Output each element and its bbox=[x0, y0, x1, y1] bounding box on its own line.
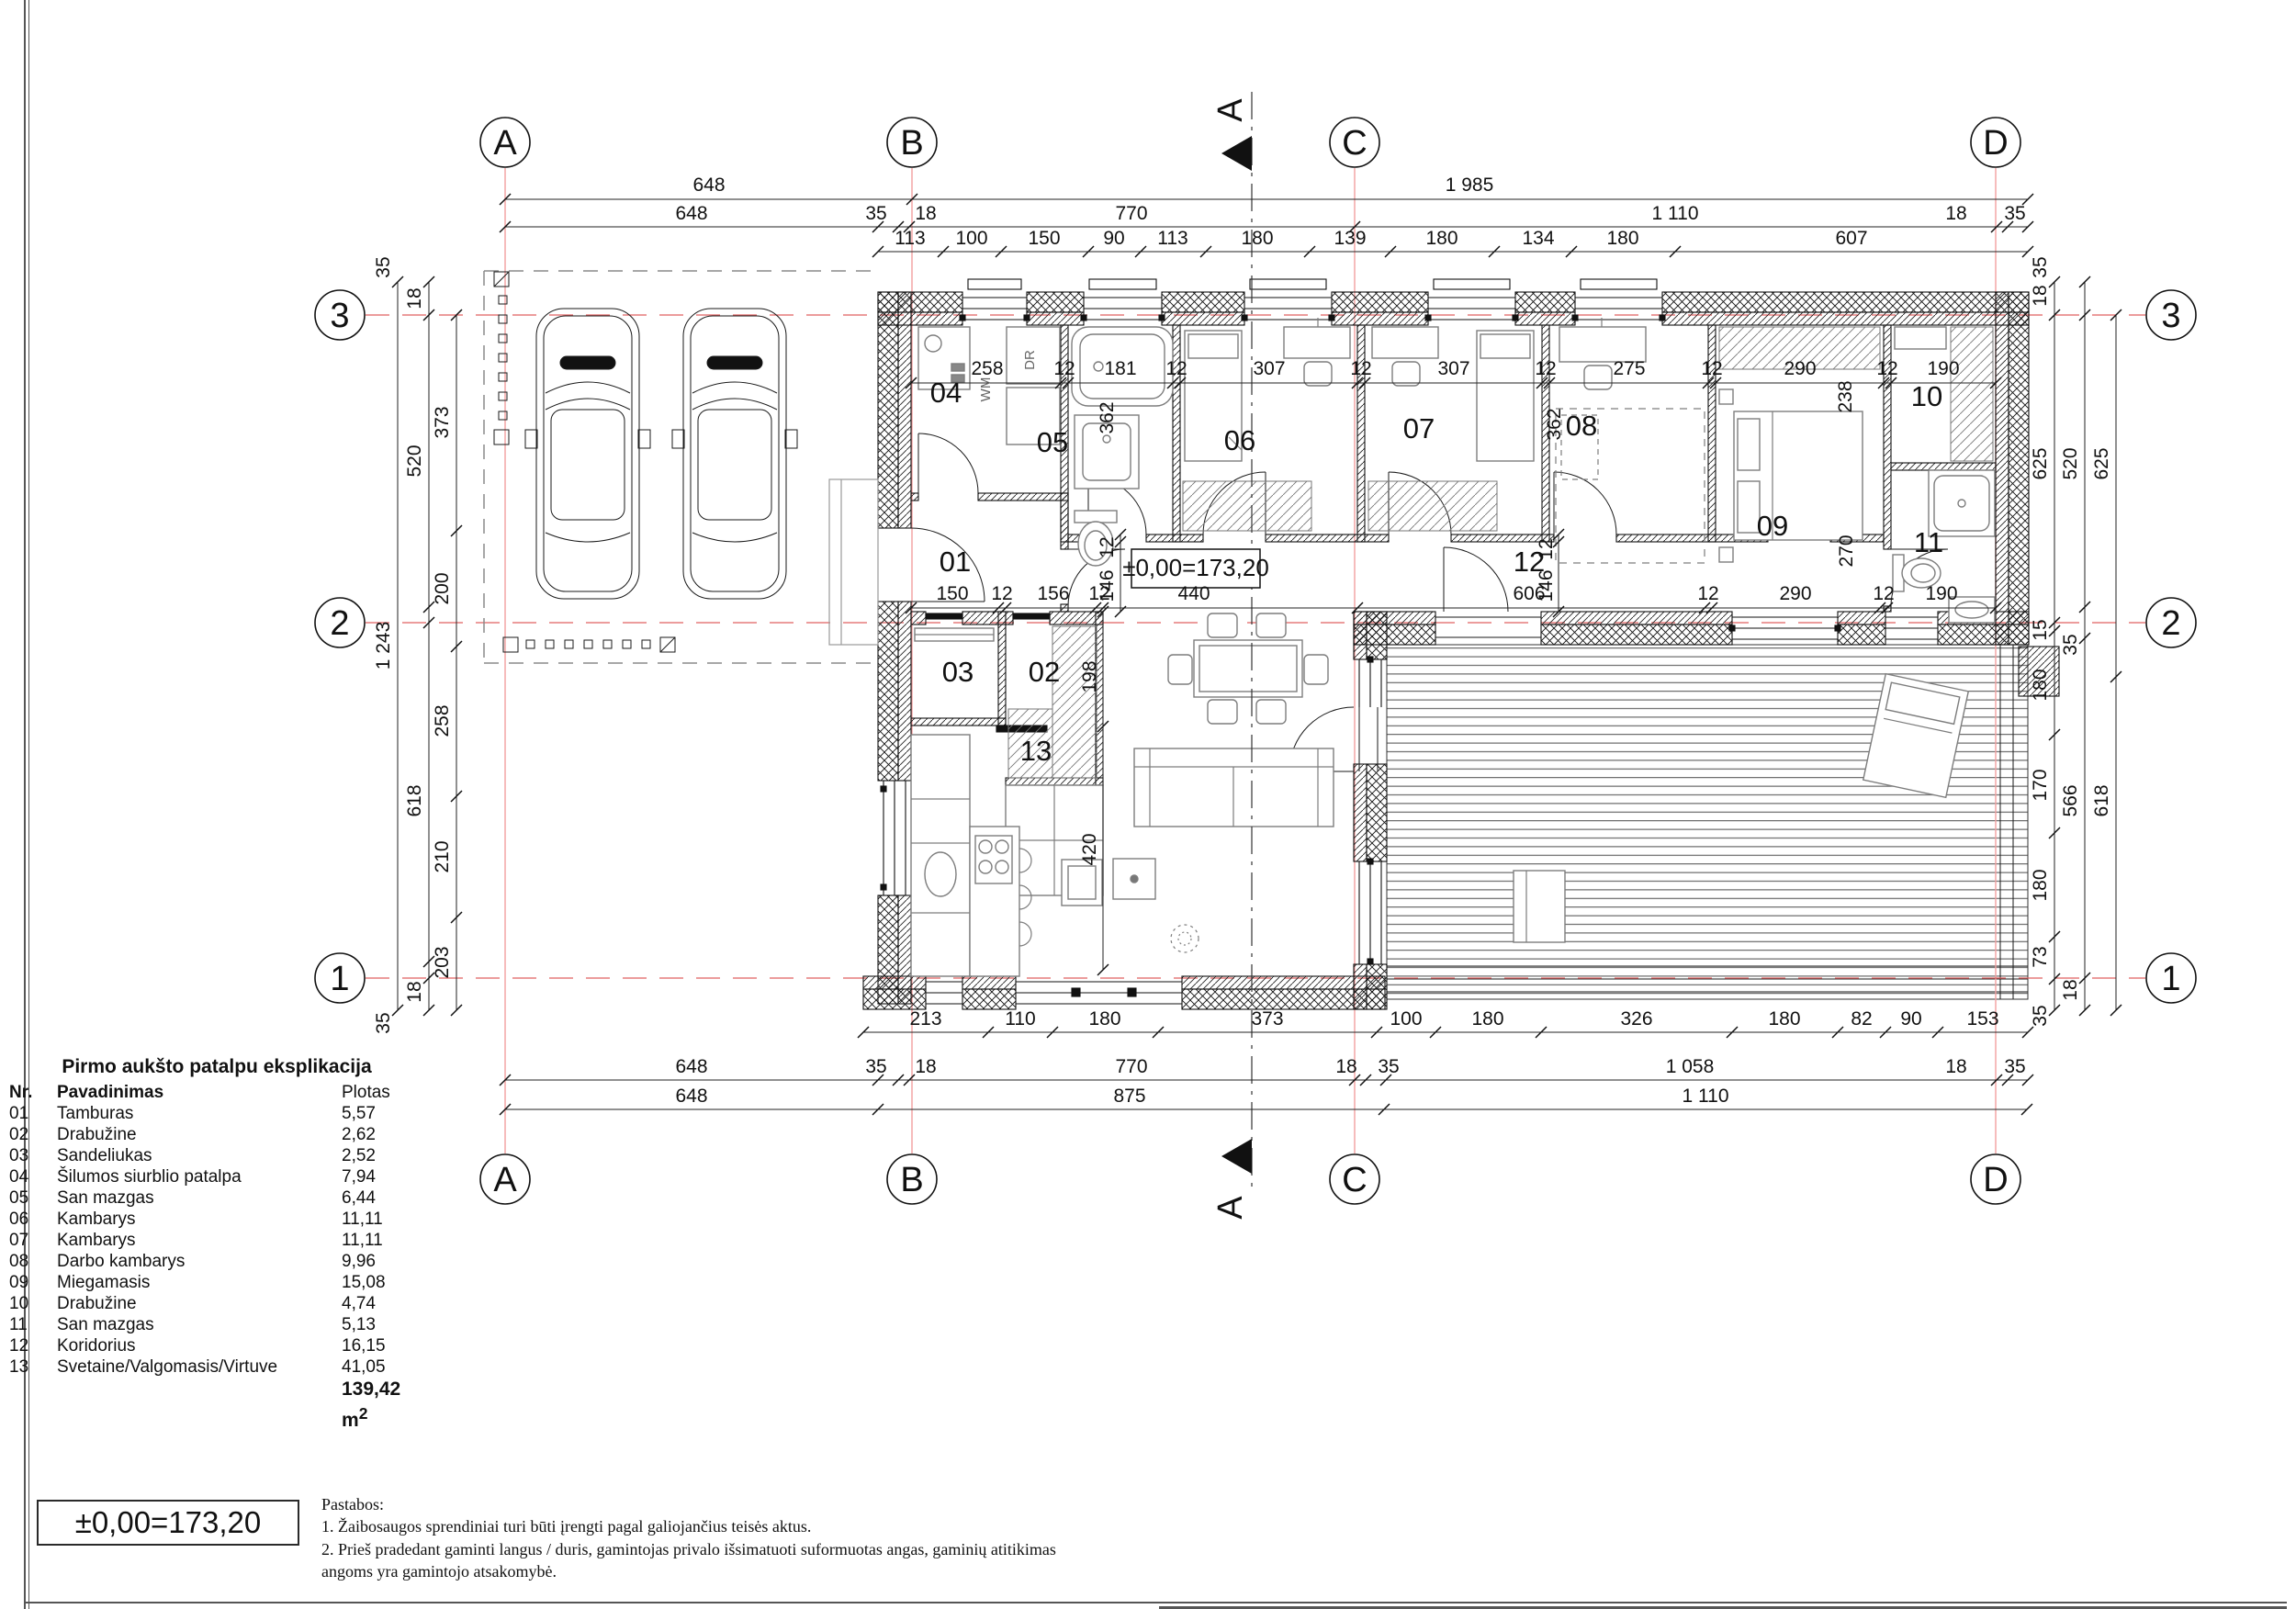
legend-row-nr: 02 bbox=[9, 1124, 57, 1145]
dim-label: 520 bbox=[2060, 447, 2081, 479]
notes-block: Pastabos: 1. Žaibosaugos sprendiniai tur… bbox=[321, 1493, 1221, 1582]
room-number: 11 bbox=[1914, 526, 1943, 558]
dim-label: 12 bbox=[991, 583, 1012, 604]
dim-label: 150 bbox=[1028, 228, 1060, 249]
legend-row-nr: 13 bbox=[9, 1356, 57, 1378]
legend-row: 01 Tamburas 5,57 bbox=[9, 1103, 424, 1124]
legend-row-area: 11,11 bbox=[342, 1230, 424, 1251]
car bbox=[525, 309, 650, 599]
dim-label: 180 bbox=[1241, 228, 1273, 249]
dim-label: 1 110 bbox=[1683, 1086, 1729, 1107]
dim-label: 770 bbox=[1115, 1056, 1147, 1077]
dim-label: 180 bbox=[1768, 1008, 1800, 1030]
dim-label: 1 110 bbox=[1652, 203, 1699, 224]
legend-row-area: 41,05 bbox=[342, 1356, 424, 1378]
axis-col-c-bottom: C bbox=[1342, 1161, 1367, 1199]
legend-row: 13 Svetaine/Valgomasis/Virtuve 41,05 bbox=[9, 1356, 424, 1378]
dim-label: 420 bbox=[1079, 833, 1100, 865]
dim-label: 18 bbox=[1945, 203, 1966, 224]
dim-label: 18 bbox=[404, 981, 425, 1002]
dim-label: 170 bbox=[2030, 769, 2051, 801]
dim-label: 198 bbox=[1079, 660, 1100, 692]
legend-row-area: 5,13 bbox=[342, 1314, 424, 1335]
floor-plan-sheet: A A A B C D A B C D 3 2 1 3 2 1 bbox=[0, 0, 2296, 1609]
dim-label: 15 bbox=[2030, 619, 2051, 640]
legend-row-area: 2,62 bbox=[342, 1124, 424, 1145]
dim-label: 875 bbox=[1113, 1086, 1145, 1107]
room-number: 13 bbox=[1020, 735, 1052, 767]
window-north-04 bbox=[960, 279, 1030, 321]
axis-row-1-right: 1 bbox=[2161, 960, 2180, 998]
dim-label: 326 bbox=[1620, 1008, 1652, 1030]
dim-label: 275 bbox=[1613, 358, 1645, 379]
dim-label: 146 bbox=[1097, 569, 1118, 602]
legend-row-nr: 06 bbox=[9, 1209, 57, 1230]
dim-label: 150 bbox=[936, 583, 968, 604]
dim-label: 373 bbox=[432, 406, 453, 438]
legend-row-area: 7,94 bbox=[342, 1166, 424, 1187]
dim-label: 1 243 bbox=[373, 622, 394, 670]
axis-col-a: A bbox=[493, 124, 517, 163]
dim-label: 18 bbox=[1335, 1056, 1356, 1077]
dim-label: 180 bbox=[1425, 228, 1458, 249]
axis-col-d: D bbox=[1983, 124, 2008, 163]
legend-row-area: 15,08 bbox=[342, 1272, 424, 1293]
dim-label: 213 bbox=[909, 1008, 941, 1030]
dim-label: 180 bbox=[1088, 1008, 1120, 1030]
legend-row-name: Drabužine bbox=[57, 1124, 342, 1145]
legend-row-area: 2,52 bbox=[342, 1145, 424, 1166]
dim-label: 90 bbox=[1900, 1008, 1921, 1030]
legend-row: 04 Šilumos siurblio patalpa 7,94 bbox=[9, 1166, 424, 1187]
room-schedule: Pirmo aukšto patalpu eksplikacija Nr. Pa… bbox=[9, 1056, 424, 1433]
dim-label: DR bbox=[1022, 350, 1038, 370]
wardrobe bbox=[1183, 481, 1311, 531]
section-arrow-bottom bbox=[1221, 1139, 1252, 1174]
dim-label: 100 bbox=[1390, 1008, 1422, 1030]
legend-row-name: Sandeliukas bbox=[57, 1145, 342, 1166]
desk bbox=[1284, 318, 1350, 386]
legend-row-name: Svetaine/Valgomasis/Virtuve bbox=[57, 1356, 342, 1378]
dim-label: 35 bbox=[373, 1012, 394, 1033]
legend-row-nr: 11 bbox=[9, 1314, 57, 1335]
legend-row-area: 11,11 bbox=[342, 1209, 424, 1230]
legend-title: Pirmo aukšto patalpu eksplikacija bbox=[9, 1056, 424, 1078]
legend-row-name: Darbo kambarys bbox=[57, 1251, 342, 1272]
window-south-2 bbox=[1016, 982, 1182, 1004]
room-number: 09 bbox=[1757, 510, 1788, 542]
dim-label: 35 bbox=[865, 1056, 886, 1077]
legend-row-name: Tamburas bbox=[57, 1103, 342, 1124]
axis-col-d-bottom: D bbox=[1983, 1161, 2008, 1199]
dim-label: 1 058 bbox=[1666, 1056, 1715, 1077]
legend-row: 08 Darbo kambarys 9,96 bbox=[9, 1251, 424, 1272]
plant bbox=[1171, 925, 1199, 952]
room-number: 01 bbox=[940, 546, 971, 578]
notes-heading: Pastabos: bbox=[321, 1493, 1221, 1515]
dim-label: 90 bbox=[1103, 228, 1124, 249]
dim-label: 18 bbox=[2060, 979, 2081, 1000]
dim-label: 307 bbox=[1437, 358, 1469, 379]
dim-label: 156 bbox=[1037, 583, 1069, 604]
legend-row-nr: 10 bbox=[9, 1293, 57, 1314]
legend-row: 07 Kambarys 11,11 bbox=[9, 1230, 424, 1251]
axis-row-1-left: 1 bbox=[330, 960, 349, 998]
elevation-datum: ±0,00=173,20 bbox=[75, 1505, 262, 1540]
room-number: 05 bbox=[1037, 426, 1068, 458]
dim-label: 770 bbox=[1115, 203, 1147, 224]
dim-label: 35 bbox=[1378, 1056, 1399, 1077]
car bbox=[672, 309, 797, 599]
legend-row-name: Šilumos siurblio patalpa bbox=[57, 1166, 342, 1187]
dim-label: 18 bbox=[915, 1056, 936, 1077]
legend-row-nr: 04 bbox=[9, 1166, 57, 1187]
dim-label: 35 bbox=[865, 203, 886, 224]
legend-row-nr: 12 bbox=[9, 1335, 57, 1356]
dim-label: 18 bbox=[2030, 285, 2051, 306]
dim-label: 238 bbox=[1835, 380, 1856, 412]
dim-label: 100 bbox=[955, 228, 987, 249]
dim-label: 35 bbox=[2004, 203, 2025, 224]
legend-row: 10 Drabužine 4,74 bbox=[9, 1293, 424, 1314]
section-label-bottom: A bbox=[1211, 1196, 1250, 1220]
dim-label: 618 bbox=[404, 784, 425, 816]
dim-label: 12 bbox=[1876, 358, 1897, 379]
stove-unit bbox=[1113, 859, 1155, 899]
dim-label: 270 bbox=[1836, 534, 1857, 567]
legend-row-area: 4,74 bbox=[342, 1293, 424, 1314]
legend-header-name: Pavadinimas bbox=[57, 1082, 342, 1103]
legend-row-area: 9,96 bbox=[342, 1251, 424, 1272]
axis-col-c: C bbox=[1342, 124, 1367, 163]
kitchen-counter bbox=[911, 735, 970, 976]
dim-label: 290 bbox=[1784, 358, 1816, 379]
sofa bbox=[1134, 748, 1334, 827]
bed bbox=[1477, 331, 1534, 461]
dim-label: 520 bbox=[404, 444, 425, 477]
dim-label: 134 bbox=[1522, 228, 1554, 249]
window-axis2-09 bbox=[1729, 617, 1840, 639]
dim-label: 1 985 bbox=[1446, 174, 1494, 196]
dim-label: 373 bbox=[1251, 1008, 1283, 1030]
dim-label: 35 bbox=[2030, 1005, 2051, 1026]
dim-label: 190 bbox=[1927, 358, 1959, 379]
dim-label: 258 bbox=[971, 358, 1003, 379]
legend-row-nr: 05 bbox=[9, 1187, 57, 1209]
porch bbox=[829, 479, 878, 645]
room-number: 04 bbox=[930, 377, 962, 409]
dim-label: 648 bbox=[675, 1056, 707, 1077]
dining-table bbox=[1168, 613, 1328, 724]
legend-row-area: 6,44 bbox=[342, 1187, 424, 1209]
legend-row-nr: 01 bbox=[9, 1103, 57, 1124]
legend-row: 02 Drabužine 2,62 bbox=[9, 1124, 424, 1145]
dim-label: 113 bbox=[895, 228, 925, 249]
window-axis2-11 bbox=[1885, 617, 1938, 639]
dim-label: 12 bbox=[1097, 536, 1118, 557]
dim-label: 139 bbox=[1334, 228, 1366, 249]
dim-label: 180 bbox=[2030, 869, 2051, 901]
dim-label: 35 bbox=[2060, 634, 2081, 655]
axis-row-3-left: 3 bbox=[330, 297, 349, 335]
window-north-07 bbox=[1425, 279, 1518, 321]
legend-row-nr: 09 bbox=[9, 1272, 57, 1293]
legend-row-name: Drabužine bbox=[57, 1293, 342, 1314]
dim-label: 12 bbox=[1350, 358, 1371, 379]
dim-label: 35 bbox=[2030, 256, 2051, 277]
axis-row-2-left: 2 bbox=[330, 604, 349, 643]
legend-row: 12 Koridorius 16,15 bbox=[9, 1335, 424, 1356]
window-east-2 bbox=[1359, 859, 1381, 964]
dim-label: 190 bbox=[1925, 583, 1957, 604]
dim-label: 203 bbox=[432, 946, 453, 978]
legend-header-nr: Nr. bbox=[9, 1082, 57, 1103]
legend-row: 11 San mazgas 5,13 bbox=[9, 1314, 424, 1335]
window-north-05 bbox=[1081, 279, 1165, 321]
dim-label: 648 bbox=[692, 174, 725, 196]
axis-col-b: B bbox=[900, 124, 923, 163]
axis-row-2-right: 2 bbox=[2161, 604, 2180, 643]
legend-row-name: Kambarys bbox=[57, 1230, 342, 1251]
dim-label: 625 bbox=[2030, 447, 2051, 479]
axis-col-b-bottom: B bbox=[900, 1161, 923, 1199]
legend-row-nr: 08 bbox=[9, 1251, 57, 1272]
legend-header-area: Plotas bbox=[342, 1082, 424, 1103]
legend-row-nr: 03 bbox=[9, 1145, 57, 1166]
dim-label: 180 bbox=[2030, 669, 2051, 701]
dim-label: 110 bbox=[1005, 1008, 1035, 1030]
section-arrow-top bbox=[1221, 136, 1252, 171]
door-08 bbox=[1554, 472, 1616, 534]
legend-row-name: Miegamasis bbox=[57, 1272, 342, 1293]
legend-header: Nr. Pavadinimas Plotas bbox=[9, 1082, 424, 1103]
notes-line-2: 2. Prieš pradedant gaminti langus / duri… bbox=[321, 1538, 1221, 1560]
dim-label: 307 bbox=[1253, 358, 1285, 379]
dim-label: 200 bbox=[432, 572, 453, 604]
window-east-1 bbox=[1359, 657, 1381, 707]
dim-label: 625 bbox=[2091, 447, 2112, 479]
dim-label: 18 bbox=[1945, 1056, 1966, 1077]
legend-row-name: San mazgas bbox=[57, 1187, 342, 1209]
dim-label: 607 bbox=[1835, 228, 1867, 249]
room-number: 08 bbox=[1566, 410, 1597, 442]
dim-label: 35 bbox=[2004, 1056, 2025, 1077]
dim-label: 35 bbox=[373, 256, 394, 277]
dim-label: 82 bbox=[1851, 1008, 1872, 1030]
paver-markers bbox=[494, 272, 675, 652]
shelf bbox=[915, 628, 994, 641]
dim-label: 648 bbox=[675, 203, 707, 224]
section-label-top: A bbox=[1211, 98, 1250, 122]
room-number: 07 bbox=[1403, 412, 1435, 444]
room-number: 03 bbox=[942, 656, 974, 688]
dim-label: 440 bbox=[1177, 583, 1210, 604]
legend-row: 03 Sandeliukas 2,52 bbox=[9, 1145, 424, 1166]
window-north-06 bbox=[1242, 279, 1334, 321]
legend-rows: 01 Tamburas 5,57 02 Drabužine 2,62 03 Sa… bbox=[9, 1103, 424, 1378]
deck-chair bbox=[1514, 871, 1565, 942]
dim-label: 153 bbox=[1966, 1008, 1998, 1030]
window-west-13 bbox=[881, 781, 906, 895]
dim-label: 73 bbox=[2030, 946, 2051, 967]
legend-row-name: Kambarys bbox=[57, 1209, 342, 1230]
dim-label: 12 bbox=[1053, 358, 1075, 379]
legend-row-nr: 07 bbox=[9, 1230, 57, 1251]
dim-label: 12 bbox=[1697, 583, 1718, 604]
dim-label: 180 bbox=[1606, 228, 1638, 249]
dim-label: 210 bbox=[432, 840, 453, 872]
dim-label: 290 bbox=[1779, 583, 1811, 604]
legend-row: 05 San mazgas 6,44 bbox=[9, 1187, 424, 1209]
legend-row: 09 Miegamasis 15,08 bbox=[9, 1272, 424, 1293]
legend-row-name: Koridorius bbox=[57, 1335, 342, 1356]
plan-elevation-box: ±0,00=173,20 bbox=[1122, 549, 1269, 588]
dim-label: 12 bbox=[1701, 358, 1722, 379]
dim-label: 180 bbox=[1471, 1008, 1503, 1030]
dim-label: 618 bbox=[2091, 784, 2112, 816]
dim-label: 181 bbox=[1104, 358, 1136, 379]
desk bbox=[1372, 327, 1438, 386]
room-number: 02 bbox=[1029, 656, 1060, 688]
dim-label: 113 bbox=[1157, 228, 1187, 249]
dim-label: 18 bbox=[915, 203, 936, 224]
wardrobe bbox=[1368, 481, 1497, 531]
dim-label: 566 bbox=[2060, 784, 2081, 816]
notes-line-3: angoms yra gamintojo atsakomybė. bbox=[321, 1560, 1221, 1582]
axis-row-3-right: 3 bbox=[2161, 297, 2180, 335]
legend-row: 06 Kambarys 11,11 bbox=[9, 1209, 424, 1230]
legend-total-row: 139,42 m2 bbox=[9, 1378, 424, 1433]
room-number: 10 bbox=[1911, 380, 1942, 412]
plan-elevation-label: ±0,00=173,20 bbox=[1122, 554, 1269, 581]
dim-label: 12 bbox=[1535, 358, 1556, 379]
dim-label: 362 bbox=[1097, 401, 1118, 433]
kitchen-island bbox=[970, 827, 1019, 976]
dim-label: 258 bbox=[432, 704, 453, 737]
dim-label: 648 bbox=[675, 1086, 707, 1107]
carport bbox=[484, 271, 878, 663]
dim-label: WM bbox=[978, 377, 994, 402]
dim-label: 12 bbox=[1165, 358, 1187, 379]
legend-row-area: 16,15 bbox=[342, 1335, 424, 1356]
legend-row-name: San mazgas bbox=[57, 1314, 342, 1335]
closet-shelves bbox=[1895, 327, 1993, 461]
window-south-1 bbox=[926, 982, 962, 1004]
door-01-04 bbox=[918, 433, 978, 493]
dim-label: 12 bbox=[1873, 583, 1894, 604]
window-north-08 bbox=[1572, 279, 1665, 321]
legend-total: 139,42 m2 bbox=[342, 1378, 424, 1433]
dim-label: 18 bbox=[404, 287, 425, 309]
dim-label: 362 bbox=[1544, 408, 1565, 440]
legend-row-area: 5,57 bbox=[342, 1103, 424, 1124]
room-number: 06 bbox=[1224, 424, 1255, 456]
room-number: 12 bbox=[1514, 546, 1545, 578]
notes-line-1: 1. Žaibosaugos sprendiniai turi būti įre… bbox=[321, 1515, 1221, 1537]
double-bed bbox=[1734, 411, 1863, 540]
axis-col-a-bottom: A bbox=[493, 1161, 517, 1199]
elevation-datum-box: ±0,00=173,20 bbox=[37, 1500, 299, 1546]
